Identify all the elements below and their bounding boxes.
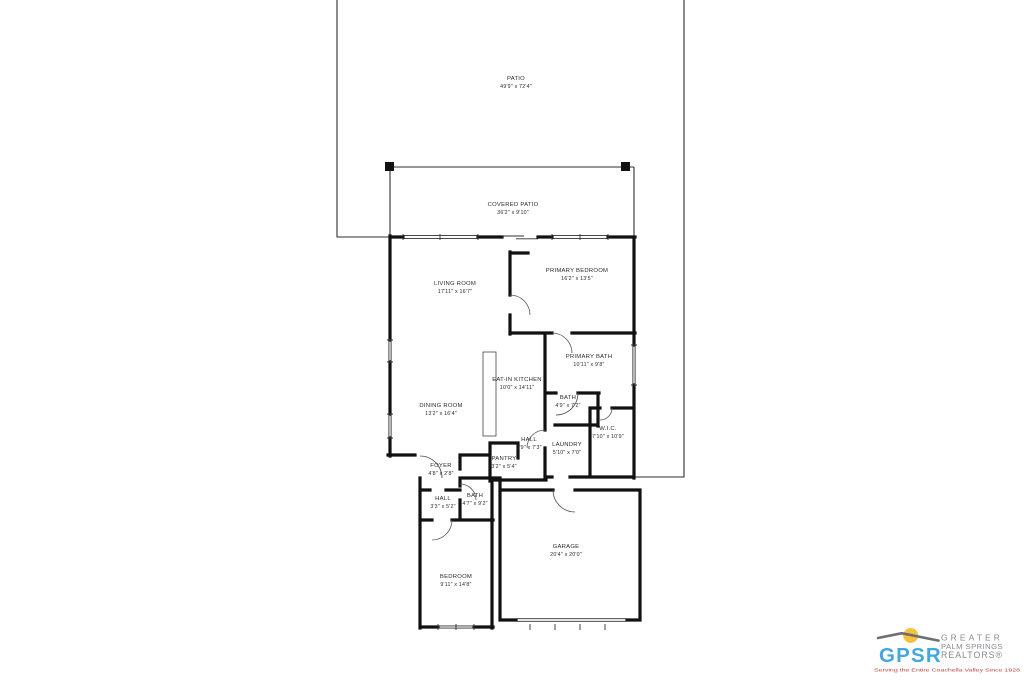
room-bedroom: BEDROOM 9'11" x 14'8" [440,574,472,588]
svg-text:4'8" x 2'8": 4'8" x 2'8" [428,471,453,477]
room-dining-room: DINING ROOM 13'2" x 16'4" [419,403,462,417]
svg-text:GARAGE: GARAGE [553,544,580,550]
logo-acronym: GPSR [879,644,942,667]
svg-text:COVERED PATIO: COVERED PATIO [488,202,539,208]
room-primary-bath: PRIMARY BATH 10'11" x 9'8" [566,354,613,368]
svg-text:17'11" x 16'7": 17'11" x 16'7" [438,289,472,295]
room-garage: GARAGE 20'4" x 20'0" [550,544,582,558]
svg-text:7'10" x 10'9": 7'10" x 10'9" [592,434,624,440]
driveway-ticks [530,624,605,630]
svg-text:9'11" x 14'8": 9'11" x 14'8" [440,582,471,588]
screenshot-canvas: PATIO 49'9" x 72'4" COVERED PATIO 36'2" … [0,0,1024,683]
walls [388,236,640,628]
logo-line3: REALTORS® [941,650,1003,660]
room-primary-bedroom: PRIMARY BEDROOM 16'2" x 13'5" [546,268,608,282]
svg-text:10'11" x 9'8": 10'11" x 9'8" [573,362,604,368]
svg-text:3'2" x 5'4": 3'2" x 5'4" [491,464,516,470]
svg-text:3'9" x 7'3": 3'9" x 7'3" [516,445,541,451]
svg-text:PRIMARY BATH: PRIMARY BATH [566,354,613,360]
svg-text:LAUNDRY: LAUNDRY [552,442,582,448]
svg-text:W.I.C.: W.I.C. [599,426,617,432]
svg-text:FOYER: FOYER [430,463,452,469]
room-eat-in-kitchen: EAT-IN KITCHEN 10'0" x 14'11" [492,377,542,391]
svg-text:PATIO: PATIO [507,76,525,82]
svg-text:PANTRY: PANTRY [492,456,517,462]
svg-text:20'4" x 20'0": 20'4" x 20'0" [550,552,582,558]
svg-text:49'9" x 72'4": 49'9" x 72'4" [500,84,532,90]
room-hall-lower: HALL 3'3" x 5'2" [430,496,455,510]
room-pantry: PANTRY 3'2" x 5'4" [491,456,516,470]
logo-tagline: Serving the Entire Coachella Valley Sinc… [874,668,1020,674]
room-patio: PATIO 49'9" x 72'4" [500,76,532,90]
room-living-room: LIVING ROOM 17'11" x 16'7" [434,281,476,295]
slider-door-icon [502,236,538,239]
room-covered-patio: COVERED PATIO 36'2" x 9'10" [488,202,539,216]
svg-text:LIVING ROOM: LIVING ROOM [434,281,476,287]
covered-patio-structure [385,162,634,237]
svg-text:36'2" x 9'10": 36'2" x 9'10" [497,210,529,216]
room-bath-upper: BATH 4'9" x 7'2" [555,395,580,409]
room-foyer: FOYER 4'8" x 2'8" [428,463,453,477]
svg-text:BEDROOM: BEDROOM [440,574,472,580]
room-bath-lower: BATH 4'7" x 9'2" [462,493,487,507]
svg-text:3'3" x 5'2": 3'3" x 5'2" [430,504,455,510]
svg-text:BATH: BATH [560,395,576,401]
svg-text:EAT-IN KITCHEN: EAT-IN KITCHEN [492,377,542,383]
svg-text:10'0" x 14'11": 10'0" x 14'11" [500,385,534,391]
room-wic: W.I.C. 7'10" x 10'9" [592,426,624,440]
svg-text:BATH: BATH [467,493,483,499]
svg-text:16'2" x 13'5": 16'2" x 13'5" [561,276,593,282]
svg-text:13'2" x 16'4": 13'2" x 16'4" [425,411,457,417]
svg-text:4'9" x 7'2": 4'9" x 7'2" [555,403,580,409]
svg-text:DINING ROOM: DINING ROOM [419,403,462,409]
gpsr-logo: GPSR GREATER PALM SPRINGS REALTORS® Serv… [870,622,1024,683]
patio-post-icon [385,162,394,171]
room-laundry: LAUNDRY 5'10" x 7'0" [552,442,582,456]
svg-text:HALL: HALL [435,496,451,502]
kitchen-counter [483,352,496,436]
room-hall-upper: HALL 3'9" x 7'3" [516,437,541,451]
svg-text:HALL: HALL [521,437,537,443]
windows [387,234,637,630]
svg-text:4'7" x 9'2": 4'7" x 9'2" [462,501,487,507]
svg-text:5'10" x 7'0": 5'10" x 7'0" [553,450,582,456]
garage-door [516,619,627,630]
floor-plan: PATIO 49'9" x 72'4" COVERED PATIO 36'2" … [0,0,1024,683]
patio-post-icon [621,162,630,171]
svg-text:PRIMARY BEDROOM: PRIMARY BEDROOM [546,268,608,274]
